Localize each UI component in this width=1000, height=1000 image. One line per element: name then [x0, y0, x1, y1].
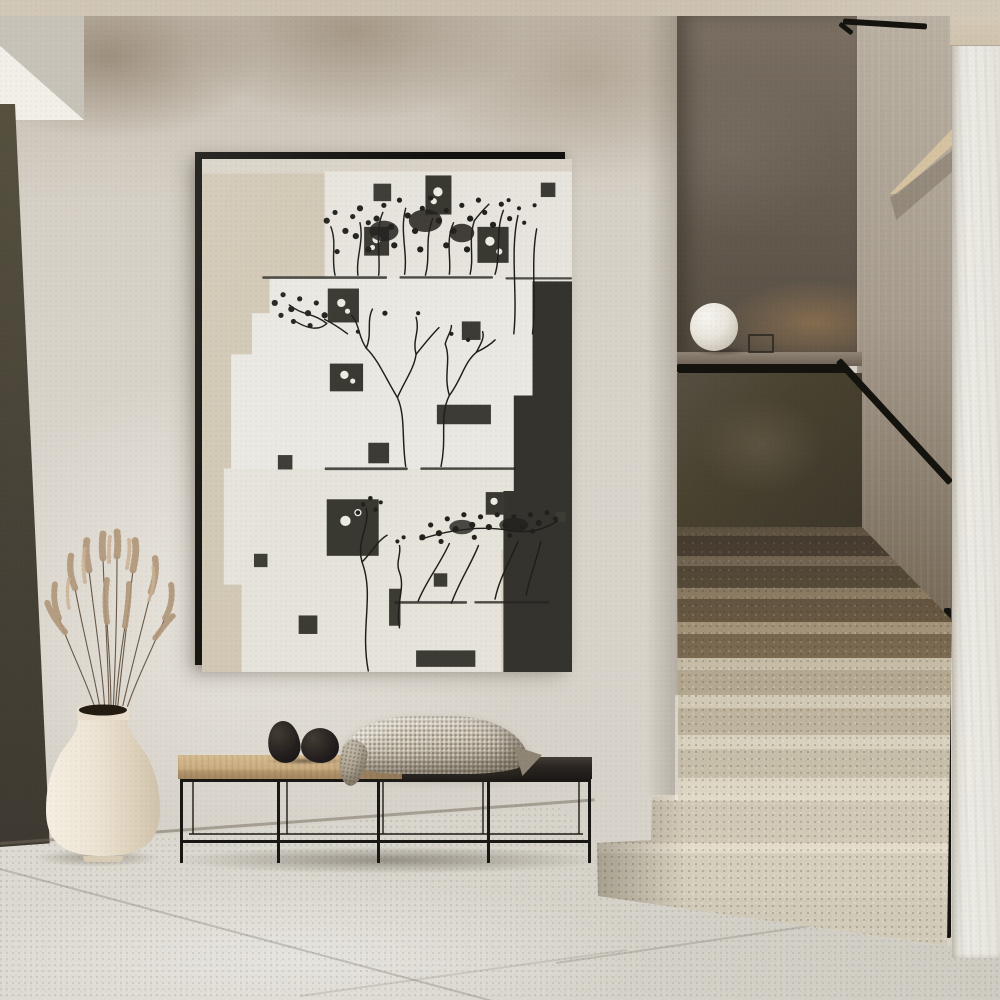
black-stone-sphere	[301, 728, 339, 763]
framed-artwork	[195, 152, 565, 665]
vase-mouth	[79, 705, 127, 716]
bench-frame-rail	[180, 779, 591, 782]
bench-leg	[487, 779, 490, 863]
stairwell-right-wall	[857, 13, 952, 621]
handrail-horizontal	[677, 364, 847, 373]
sphere-lamp	[690, 303, 738, 351]
bench-floor-shadow	[168, 846, 608, 874]
wall-corner-highlight	[675, 695, 678, 800]
interior-photo	[0, 0, 1000, 1000]
wire-decor-object	[748, 334, 774, 353]
grass-plume-highlights	[68, 536, 154, 608]
landing-half-wall	[677, 373, 862, 533]
bench-leg	[588, 779, 591, 863]
bench-leg	[277, 779, 280, 863]
bench-frame-rear-rail	[189, 833, 583, 835]
bench-rear-leg	[578, 780, 580, 834]
vase-body	[46, 720, 160, 856]
bench-frame-rail	[180, 840, 591, 843]
bench-rear-leg	[286, 780, 288, 834]
stairwell-corner-shadow	[646, 13, 678, 795]
vase-foot	[83, 856, 123, 862]
vase-with-dried-grass	[25, 522, 195, 862]
right-column	[952, 0, 1000, 958]
ceiling	[0, 0, 1000, 16]
botanical-collage	[202, 159, 572, 672]
bench-rear-leg	[482, 780, 484, 834]
bench-leg	[377, 779, 380, 863]
vase-graphic	[25, 522, 195, 862]
bench-rear-leg	[382, 780, 384, 834]
